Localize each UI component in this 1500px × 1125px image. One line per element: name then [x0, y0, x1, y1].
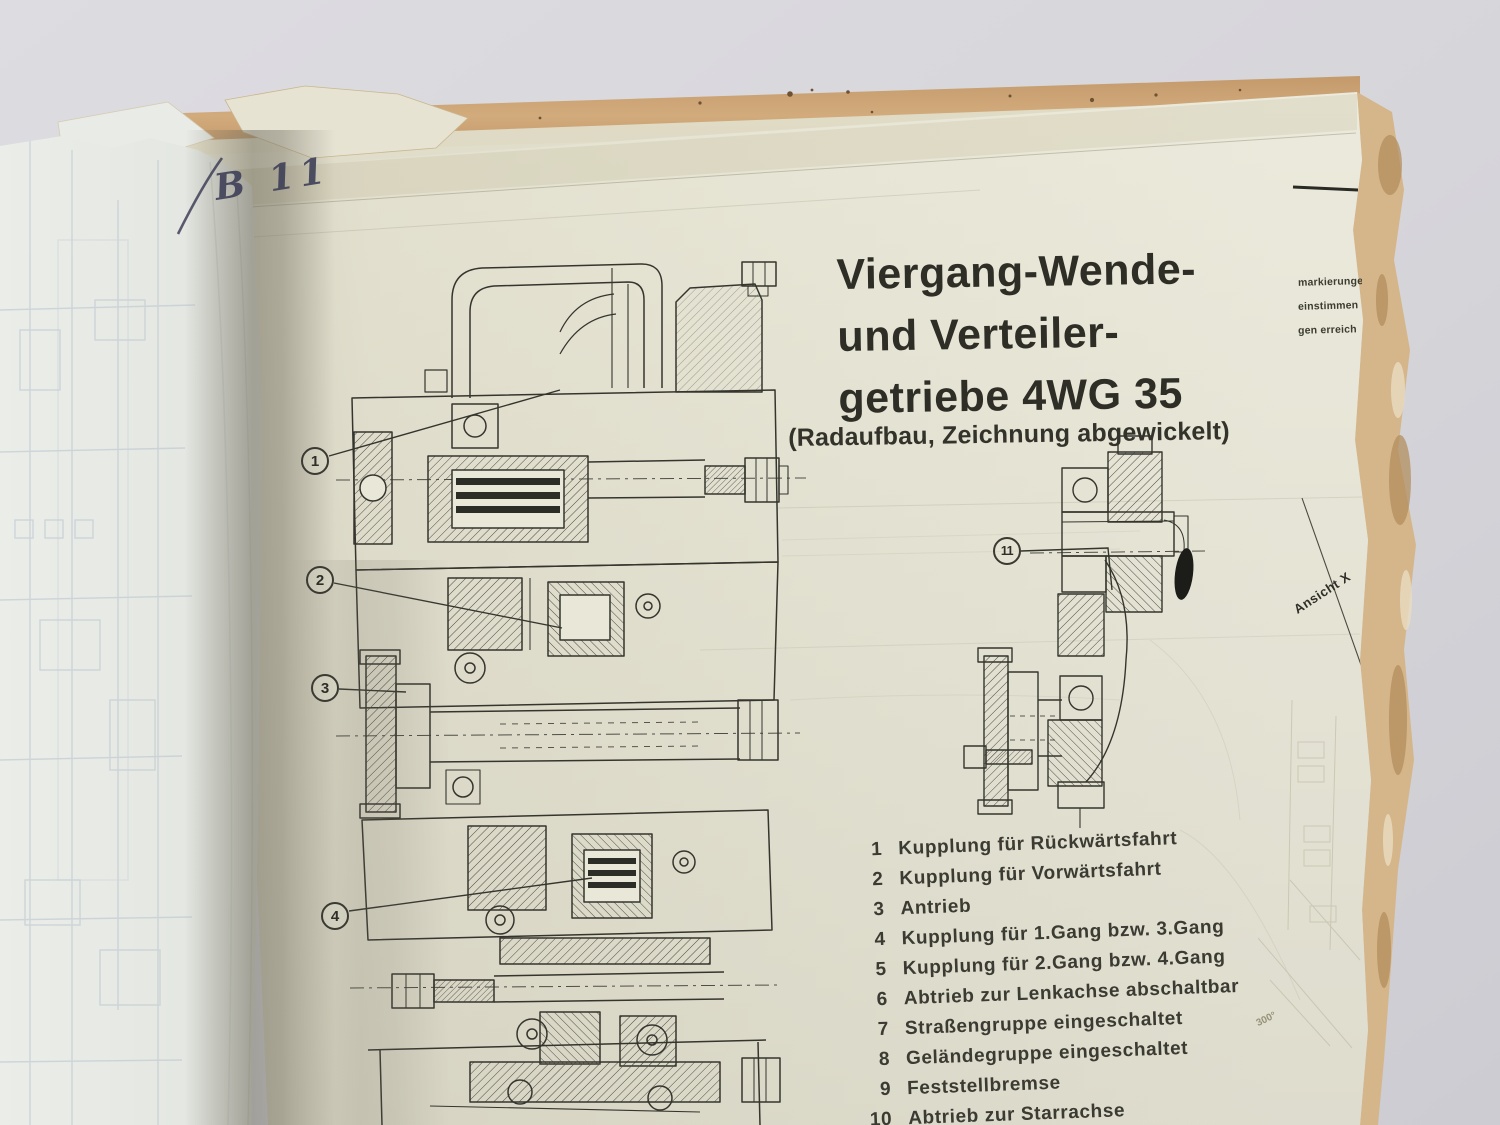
- legend: 1 Kupplung für Rückwärtsfahrt 2 Kupplung…: [852, 823, 1333, 1125]
- legend-item-number: 8: [860, 1049, 891, 1072]
- edge-text-fragment-2: einstimmen: [1298, 299, 1362, 313]
- callout-2: 2: [306, 566, 334, 594]
- callout-3: 3: [311, 674, 339, 702]
- gutter-soft-shadow: [290, 560, 450, 1125]
- legend-item-number: 9: [861, 1079, 892, 1102]
- title-line-1: Viergang-Wende-: [836, 235, 1397, 306]
- callout-11: 11: [993, 537, 1021, 565]
- edge-text-fragment-1: markierunge: [1298, 275, 1362, 289]
- edge-text-fragment-3: gen erreich: [1298, 323, 1362, 337]
- callout-1: 1: [301, 447, 329, 475]
- legend-item-number: 4: [855, 929, 886, 952]
- legend-item-number: 7: [859, 1019, 890, 1042]
- legend-item-number: 1: [852, 839, 883, 862]
- legend-item-number: 5: [856, 959, 887, 982]
- legend-item-label: Antrieb: [900, 896, 971, 921]
- legend-item-number: 2: [853, 869, 884, 892]
- legend-item-number: 6: [857, 989, 888, 1012]
- legend-item-number: 3: [854, 899, 885, 922]
- legend-item-number: 10: [862, 1109, 893, 1125]
- callout-4: 4: [321, 902, 349, 930]
- legend-item-label: Feststellbremse: [907, 1073, 1061, 1101]
- manual-page-photo: B 11 Viergang-Wende- und Verteiler- getr…: [0, 0, 1500, 1125]
